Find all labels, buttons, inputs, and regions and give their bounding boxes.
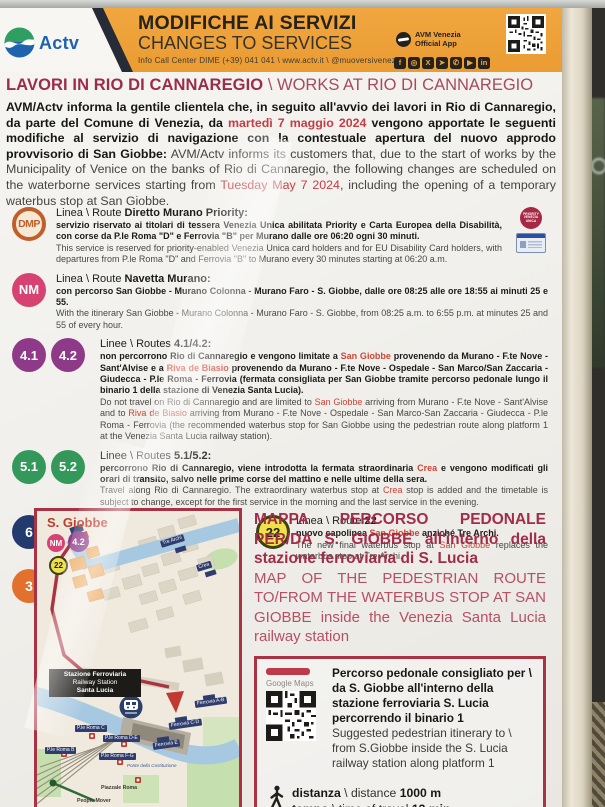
app-label-line2: Official App: [415, 40, 461, 49]
bottom-area: S. Giobbe NM 4.2 22 Tre Archi Crea Ferro…: [0, 508, 562, 807]
routes-41-42-title-main: 4.1/4.2:: [174, 338, 211, 350]
routes-51-52-title: Linee \ Routes 5.1/5.2:: [100, 450, 548, 463]
route-nm-title: Linea \ Route Navetta Murano:: [56, 273, 548, 286]
official-app-label: AVM Venezia Official App: [415, 31, 461, 48]
routes-51-52-text-en: Travel along Rio di Cannaregio. The extr…: [100, 485, 548, 508]
notice-poster: Actv MODIFICHE AI SERVIZI CHANGES TO SER…: [0, 8, 562, 807]
distance-time-row: distanza \ distance 1000 m tempo \ time …: [266, 785, 534, 807]
banner-title-en: CHANGES TO SERVICES: [138, 34, 396, 53]
social-icons-row: f ◎ X ➤ ✆ ▶ in: [394, 57, 490, 69]
map-heading-en: MAP OF THE PEDESTRIAN ROUTE TO/FROM THE …: [254, 570, 546, 646]
train-icon: [120, 696, 143, 719]
poster-case-side-frame: [560, 8, 592, 807]
map-label-ponte-costituzione: Ponte della Costituzione: [127, 763, 177, 768]
google-maps-qr-icon: [266, 691, 316, 741]
routes-41-42-text-en: Do not travel on Rio di Cannaregio and a…: [100, 397, 548, 443]
map-label-piazzale-roma: Piazzale Roma: [101, 785, 137, 791]
intro-en-date: Tuesday May 7 2024: [220, 178, 340, 192]
page-title: LAVORI IN RIO DI CANNAREGIO \ WORKS AT R…: [6, 76, 558, 95]
page-title-en: WORKS AT RIO DI CANNAREGIO: [277, 76, 533, 94]
section-route-dmp: DMP Linea \ Route Diretto Murano Priorit…: [0, 207, 562, 266]
map-label-ple-roma-fg: P.le Roma F-G: [99, 753, 136, 760]
info-box-text: Percorso pedonale consigliato per \ da S…: [332, 666, 534, 771]
info-box-left: Google Maps: [266, 666, 324, 771]
banner-title-it: MODIFICHE AI SERVIZI: [138, 13, 396, 34]
routes-51-52-text-it: percorrono Rio di Cannaregio, viene intr…: [100, 463, 548, 486]
facebook-icon: f: [394, 57, 406, 69]
map-label-ple-roma-c: P.le Roma C: [75, 725, 107, 732]
banner-right: AVM Venezia Official App: [392, 8, 552, 72]
station-label-line1: Stazione Ferroviaria: [49, 671, 141, 679]
route-dmp-text-it: servizio riservato ai titolari di tesser…: [56, 220, 502, 243]
route-badge-51: 5.1: [12, 450, 46, 484]
routes-51-52-title-main: 5.1/5.2:: [174, 450, 211, 462]
map-badge-42: 4.2: [68, 531, 89, 552]
info-box-text-en: Suggested pedestrian itinerary to \ from…: [332, 726, 534, 771]
station-label-line3: Santa Lucia: [49, 687, 141, 695]
routes-41-42-text-it: non percorrono Rio di Cannaregio e vengo…: [100, 351, 548, 397]
map-label-ple-roma-de: P.le Roma D-E: [103, 735, 140, 742]
route-nm-text-it: con percorso San Giobbe - Murano Colonna…: [56, 286, 548, 309]
intro-paragraphs: AVM/Actv informa la gentile clientela ch…: [6, 100, 556, 209]
map-heading: MAPPA PERCORSO PEDONALE PER/DA S. GIOBBE…: [254, 510, 546, 647]
whatsapp-icon: ✆: [450, 57, 462, 69]
route-line-legend-icon: [266, 668, 310, 675]
map-label-people-mover: People Mover: [77, 798, 111, 804]
distance-line: distanza \ distance 1000 m: [292, 785, 451, 801]
dmp-side-icons: PRIORITY VENEZIA UNICA: [514, 207, 548, 253]
pedestrian-route-info-box: Google Maps: [254, 656, 546, 807]
banner-titles: MODIFICHE AI SERVIZI CHANGES TO SERVICES…: [138, 13, 396, 65]
avm-logo-icon: [396, 32, 411, 47]
linkedin-icon: in: [478, 57, 490, 69]
station-label-line2: Railway Station: [49, 679, 141, 687]
routes-41-42-title-pre: Linee \ Routes: [100, 338, 174, 350]
priority-badge-line2: VENEZIA UNICA: [520, 216, 542, 223]
official-app-badge: AVM Venezia Official App: [396, 31, 461, 48]
route-nm-title-pre: Linea \ Route: [56, 273, 125, 285]
page-title-it: LAVORI IN RIO DI CANNAREGIO: [6, 76, 263, 94]
section-routes-51-52: 5.1 5.2 Linee \ Routes 5.1/5.2: percorro…: [0, 450, 562, 509]
instagram-icon: ◎: [408, 57, 420, 69]
actv-brand-word: Actv: [39, 33, 79, 54]
distance-time-text: distanza \ distance 1000 m tempo \ time …: [292, 785, 451, 807]
contact-line: Info Call Center DIME (+39) 041 041 \ ww…: [138, 56, 396, 65]
google-maps-label: Google Maps: [266, 679, 324, 688]
station-label: Stazione Ferroviaria Railway Station San…: [49, 669, 141, 697]
intro-it-date: martedì 7 maggio 2024: [228, 116, 366, 130]
priority-badge-icon: PRIORITY VENEZIA UNICA: [520, 207, 542, 229]
routes-51-52-title-pre: Linee \ Routes: [100, 450, 174, 462]
page-title-separator: \: [263, 76, 277, 94]
route-nm-text-en: With the itinerary San Giobbe - Murano C…: [56, 308, 548, 331]
map-area-label: S. Giobbe: [47, 515, 108, 530]
route-dmp-title: Linea \ Route Diretto Murano Priority:: [56, 207, 502, 220]
route-badge-dmp: DMP: [12, 207, 46, 241]
pedestrian-route-map: S. Giobbe NM 4.2 22 Tre Archi Crea Ferro…: [34, 508, 242, 807]
route-badge-nm: NM: [12, 273, 46, 307]
route-badge-42: 4.2: [51, 338, 85, 372]
telegram-icon: ➤: [436, 57, 448, 69]
route-dmp-title-main: Diretto Murano Priority:: [125, 207, 248, 219]
route-dmp-title-pre: Linea \ Route: [56, 207, 125, 219]
map-badge-22: 22: [49, 556, 68, 575]
poster-case-top-frame: [0, 0, 605, 8]
map-description-column: MAPPA PERCORSO PEDONALE PER/DA S. GIOBBE…: [242, 508, 562, 807]
section-route-nm: NM Linea \ Route Navetta Murano: con per…: [0, 273, 562, 332]
disability-card-icon: [516, 233, 546, 253]
routes-41-42-title: Linee \ Routes 4.1/4.2:: [100, 338, 548, 351]
time-line: tempo \ time of travel 13 min: [292, 801, 451, 807]
map-label-ple-roma-b: P.le Roma B: [45, 747, 76, 754]
banner: Actv MODIFICHE AI SERVIZI CHANGES TO SER…: [0, 8, 562, 72]
photo-scene: Actv MODIFICHE AI SERVIZI CHANGES TO SER…: [0, 0, 605, 807]
route-nm-title-main: Navetta Murano:: [125, 273, 211, 285]
info-box-text-it: Percorso pedonale consigliato per \ da S…: [332, 666, 534, 726]
route-dmp-text-en: This service is reserved for priority-en…: [56, 243, 502, 266]
youtube-icon: ▶: [464, 57, 476, 69]
map-badge-nm: NM: [47, 534, 65, 552]
actv-logo-icon: [4, 27, 35, 58]
section-routes-41-42: 4.1 4.2 Linee \ Routes 4.1/4.2: non perc…: [0, 338, 562, 442]
walking-person-icon: [268, 785, 284, 807]
route-badge-52: 5.2: [51, 450, 85, 484]
qr-code-app-icon: [506, 14, 546, 54]
street-background: [560, 8, 605, 807]
route-badge-41: 4.1: [12, 338, 46, 372]
x-twitter-icon: X: [422, 57, 434, 69]
